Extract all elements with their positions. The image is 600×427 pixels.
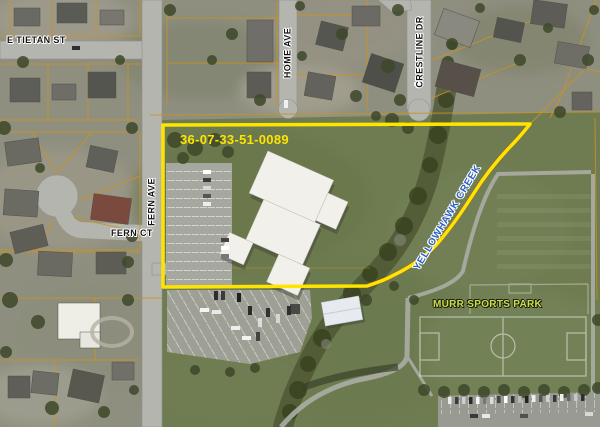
aerial-imagery — [0, 0, 600, 427]
school-driveway — [152, 263, 168, 275]
road-home-ave — [279, 0, 297, 106]
shed — [290, 304, 300, 314]
road-fern-ave — [142, 0, 162, 427]
aerial-map[interactable]: 36-07-33-51-0089 E TIETAN ST HOME AVE CR… — [0, 0, 600, 427]
road-crestline-dr — [407, 0, 431, 110]
